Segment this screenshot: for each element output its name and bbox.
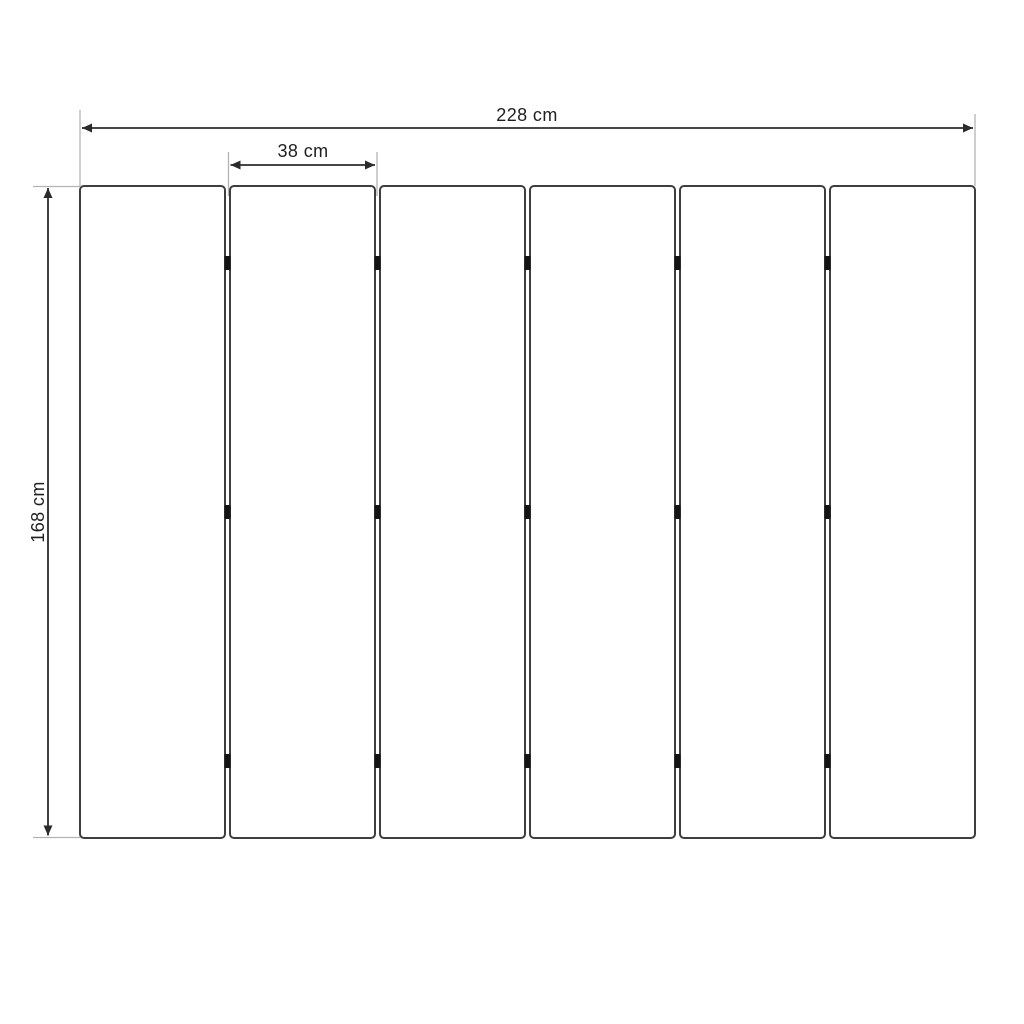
panel-6 xyxy=(830,186,975,838)
height-dimension-label: 168 cm xyxy=(28,481,48,542)
panel-3 xyxy=(380,186,525,838)
dimension-height: 168 cm xyxy=(28,188,48,836)
hinge-gap2-row3 xyxy=(375,754,381,768)
hinge-gap5-row1 xyxy=(825,256,831,270)
hinge-gap4-row3 xyxy=(675,754,681,768)
panel-width-dimension-label: 38 cm xyxy=(277,141,328,161)
hinge-gap3-row2 xyxy=(525,505,531,519)
hinge-gap2-row1 xyxy=(375,256,381,270)
hinge-gap4-row2 xyxy=(675,505,681,519)
panel-5 xyxy=(680,186,825,838)
hinge-gap5-row3 xyxy=(825,754,831,768)
hinge-gap3-row1 xyxy=(525,256,531,270)
hinge-gap5-row2 xyxy=(825,505,831,519)
hinge-gap1-row2 xyxy=(225,505,231,519)
total-width-dimension-label: 228 cm xyxy=(496,105,557,125)
panel-4 xyxy=(530,186,675,838)
hinge-gap4-row1 xyxy=(675,256,681,270)
technical-drawing-canvas: 228 cm 38 cm 168 cm xyxy=(0,0,1024,1024)
hinge-gap2-row2 xyxy=(375,505,381,519)
hinge-gap1-row1 xyxy=(225,256,231,270)
hinge-gap1-row3 xyxy=(225,754,231,768)
panel-layout-drawing: 228 cm 38 cm 168 cm xyxy=(0,0,1024,1024)
hinge-gap3-row3 xyxy=(525,754,531,768)
panel-2 xyxy=(230,186,375,838)
dimension-total-width: 228 cm xyxy=(82,105,973,128)
dimension-panel-width: 38 cm xyxy=(231,141,376,165)
panels-layer xyxy=(80,186,975,838)
panel-1 xyxy=(80,186,225,838)
